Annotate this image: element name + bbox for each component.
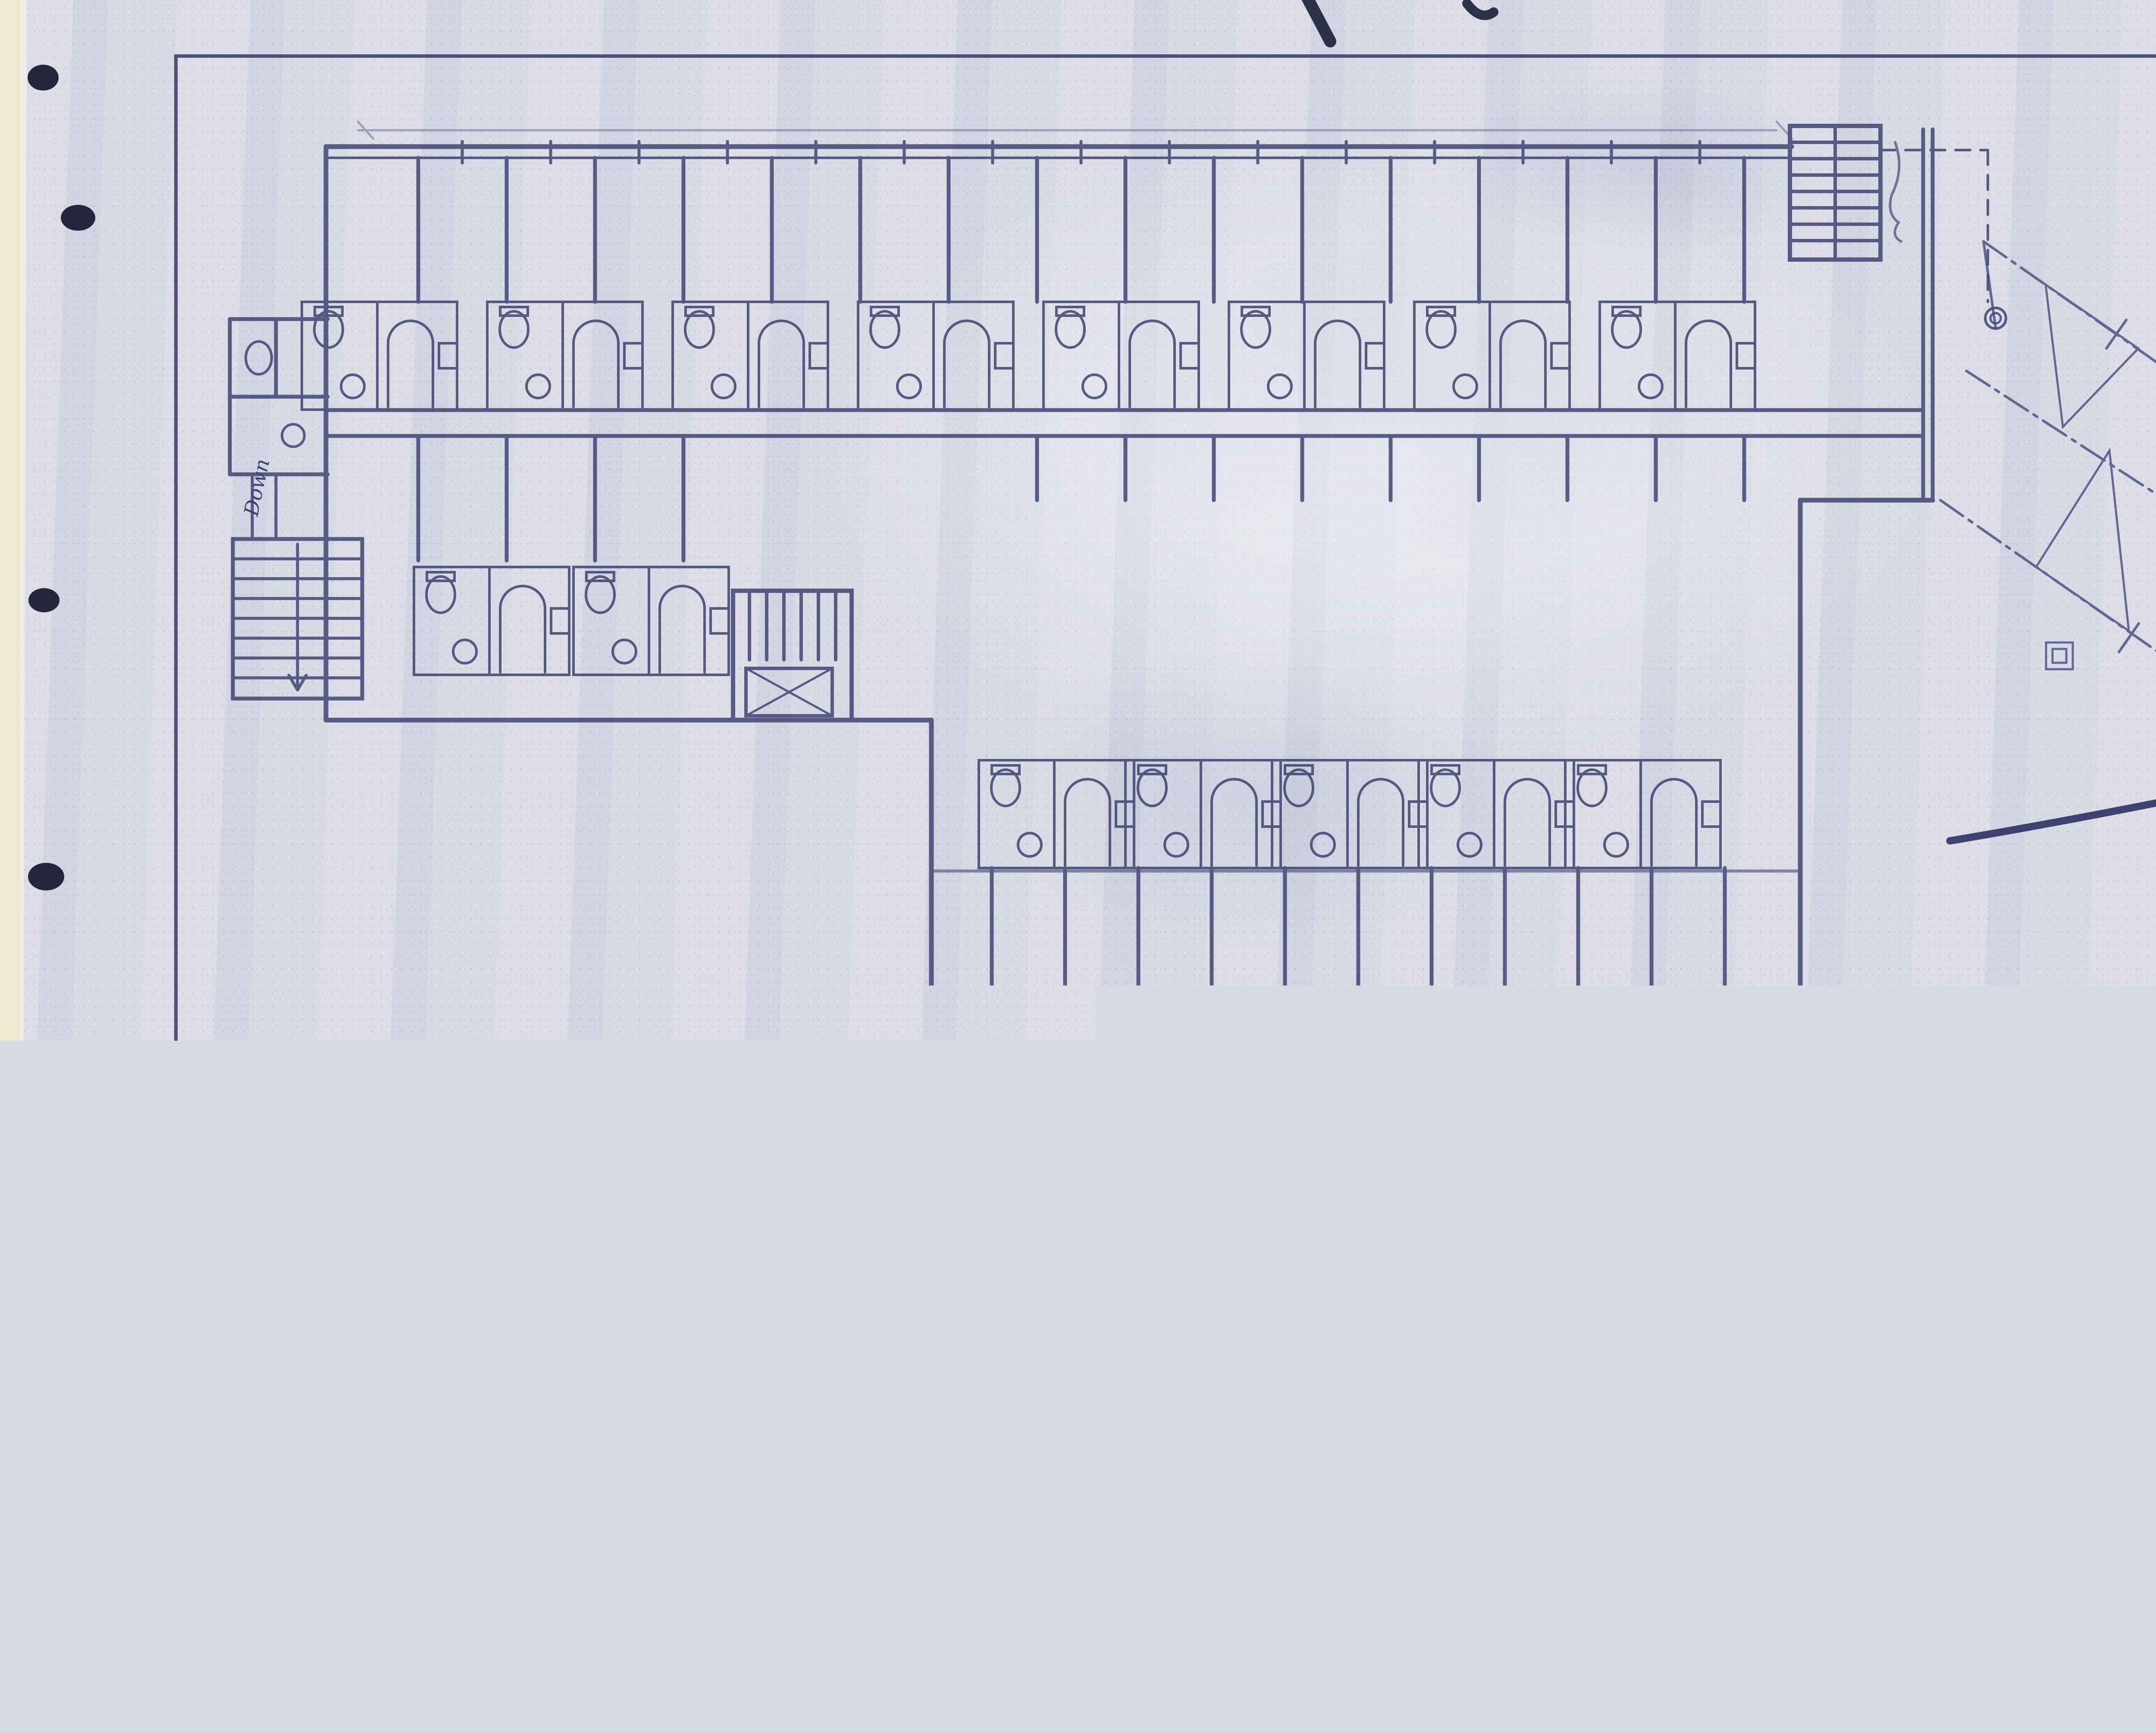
note-line-2: SUPPLEMENTARY FLOOR PLANS xyxy=(1399,1266,1986,1317)
voided-wing xyxy=(1940,241,2156,1203)
stair-scribble xyxy=(1890,142,1901,241)
blueprint-paper: NOTE: SEE 4TH FLOOR PLAN ON SUPPLEMENTAR… xyxy=(0,0,2156,1733)
top-right-stair xyxy=(1790,126,1901,260)
punch-hole xyxy=(61,205,95,231)
punch-hole xyxy=(26,1566,57,1590)
floor-plan-drawing xyxy=(0,0,2156,1733)
strike-line-long xyxy=(1950,586,2156,841)
interior-stair-elevator xyxy=(733,591,852,720)
punch-hole xyxy=(20,1667,49,1690)
bathroom-clusters-second xyxy=(414,567,729,675)
exterior-stair xyxy=(233,539,362,699)
room-partitions-top xyxy=(418,158,1744,302)
punch-hole xyxy=(28,863,64,890)
punch-hole xyxy=(59,1422,95,1448)
top-pen-slash xyxy=(1306,0,1330,41)
punch-hole xyxy=(29,1106,62,1131)
bathroom-clusters-top xyxy=(302,302,1755,410)
top-pen-dot xyxy=(1467,3,1494,16)
bathroom-clusters-lower xyxy=(979,760,1720,868)
corridor xyxy=(326,410,1923,436)
punch-hole xyxy=(28,65,59,91)
scan-left-margin xyxy=(0,0,20,1733)
strike-out-lines xyxy=(1950,224,2156,1120)
punch-hole xyxy=(28,588,60,612)
punch-holes xyxy=(20,65,95,1690)
note-annotation: NOTE: SEE 4TH FLOOR PLAN ON SUPPLEMENTAR… xyxy=(1399,1223,1987,1318)
note-line-1: NOTE: SEE 4TH FLOOR PLAN ON xyxy=(1399,1223,1986,1274)
pen-marks xyxy=(1306,0,2156,1713)
main-building xyxy=(230,122,2006,1183)
porch xyxy=(1110,1120,1600,1183)
scanned-blueprint: { "annotations": { "note_line1": "NOTE: … xyxy=(0,0,2156,1733)
